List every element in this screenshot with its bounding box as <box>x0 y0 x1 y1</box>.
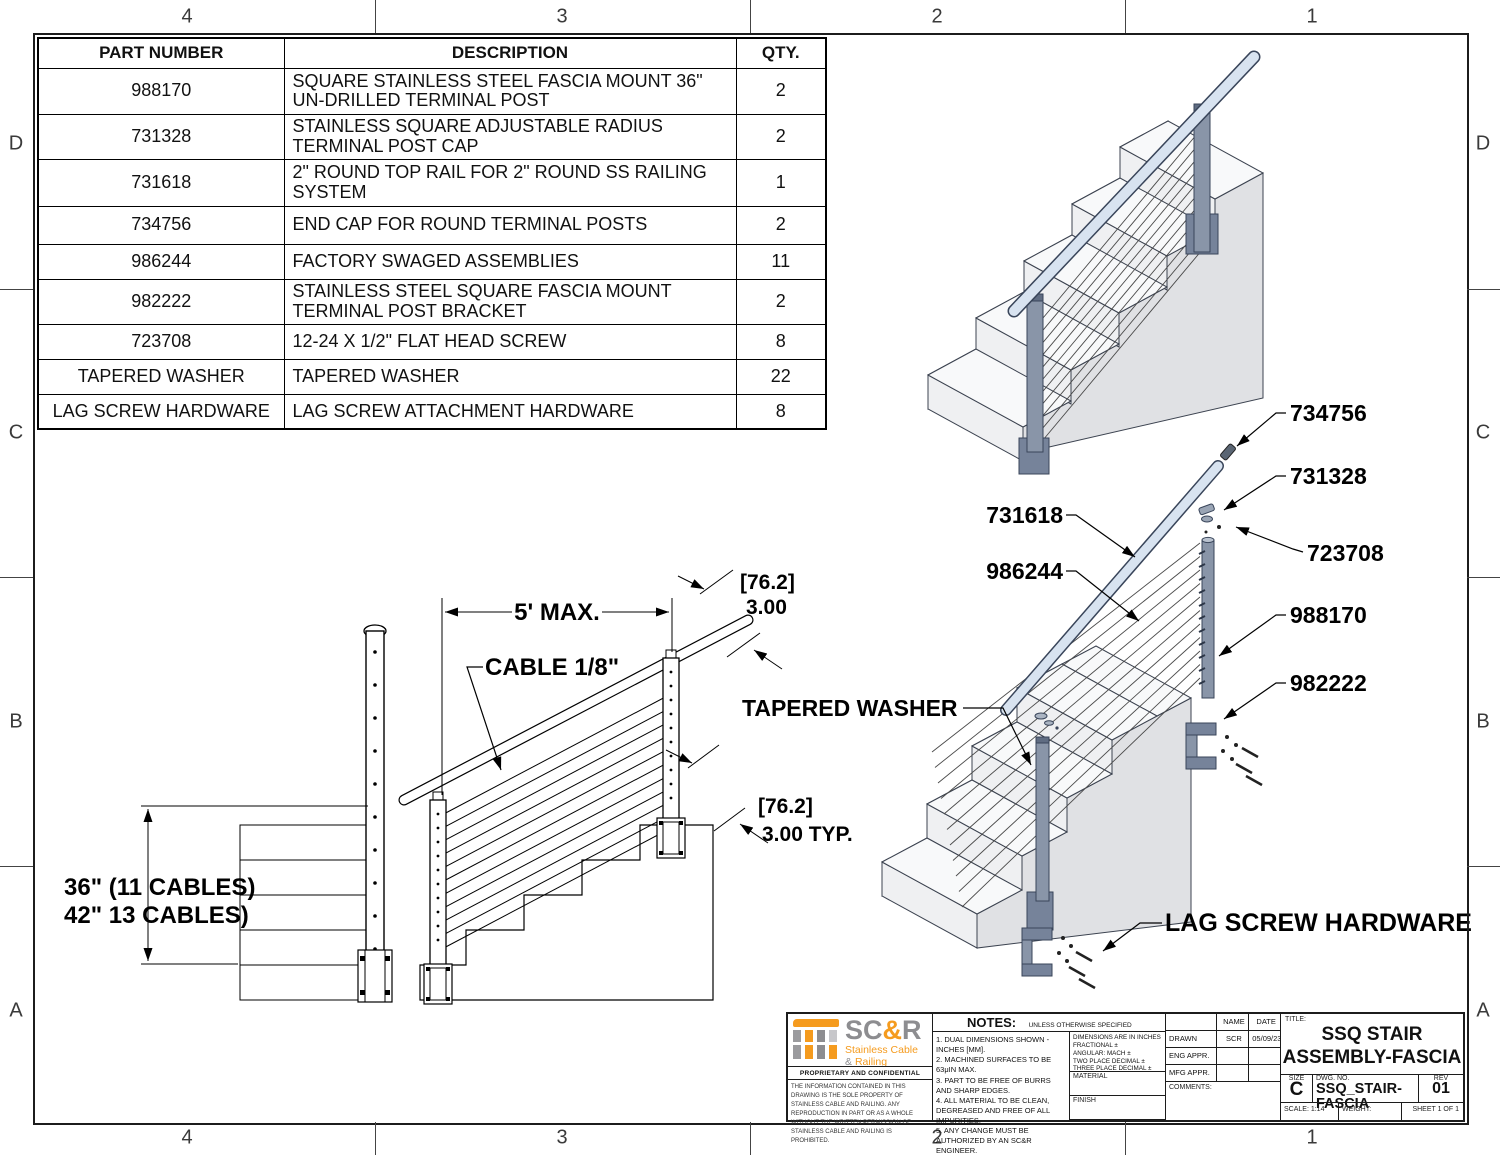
drawn-name: SCR <box>1216 1031 1249 1047</box>
notes-list: 1. DUAL DIMENSIONS SHOWN - INCHES [MM]. … <box>936 1035 1068 1155</box>
zone-label-top-4: 4 <box>181 6 192 29</box>
description-cell: FACTORY SWAGED ASSEMBLIES <box>284 244 736 279</box>
part-number-cell: 734756 <box>38 206 284 244</box>
table-row: 734756 END CAP FOR ROUND TERMINAL POSTS … <box>38 206 826 244</box>
zone-label-top-1: 1 <box>1306 6 1317 29</box>
zone-label-top-2: 2 <box>931 6 942 29</box>
title-cell: TITLE: SSQ STAIR ASSEMBLY-FASCIA SIZE C … <box>1280 1014 1463 1120</box>
scale-row: SCALE: 1:14 WEIGHT: SHEET 1 OF 1 <box>1281 1102 1463 1120</box>
qty-cell: 22 <box>736 359 826 394</box>
date-col-header: DATE <box>1248 1014 1280 1030</box>
name-col-header: NAME <box>1216 1014 1249 1030</box>
scr-logo-icon <box>793 1019 841 1061</box>
table-row: 723708 12-24 X 1/2" FLAT HEAD SCREW 8 <box>38 324 826 359</box>
zone-label-bottom-1: 1 <box>1306 1127 1317 1150</box>
size-value: C <box>1281 1082 1312 1097</box>
qty-cell: 1 <box>736 159 826 206</box>
zone-tick <box>375 1122 376 1155</box>
drawing-title: SSQ STAIR ASSEMBLY-FASCIA <box>1281 1024 1463 1070</box>
description-cell: STAINLESS STEEL SQUARE FASCIA MOUNT TERM… <box>284 279 736 324</box>
zone-label-right-A: A <box>1476 1000 1489 1023</box>
table-row: 988170 SQUARE STAINLESS STEEL FASCIA MOU… <box>38 68 826 114</box>
drawn-label: DRAWN <box>1166 1031 1216 1047</box>
qty-cell: 2 <box>736 114 826 159</box>
title-block: SC&R Stainless Cable & Railing PROPRIETA… <box>786 1012 1465 1122</box>
note-line: 1. DUAL DIMENSIONS SHOWN - INCHES [MM]. <box>936 1035 1068 1055</box>
logo-wordmark: SC&R <box>845 1017 922 1044</box>
col-header-qty: QTY. <box>736 38 826 68</box>
description-cell: SQUARE STAINLESS STEEL FASCIA MOUNT 36" … <box>284 68 736 114</box>
eng-appr-label: ENG APPR. <box>1166 1048 1216 1064</box>
drawn-date: 05/09/23 <box>1248 1031 1280 1047</box>
table-row: 731618 2" ROUND TOP RAIL FOR 2" ROUND SS… <box>38 159 826 206</box>
tolerance-line: ANGULAR: MACH ± <box>1073 1050 1166 1058</box>
zone-label-bottom-4: 4 <box>181 1127 192 1150</box>
part-number-cell: 988170 <box>38 68 284 114</box>
tolerance-line: TWO PLACE DECIMAL ± <box>1073 1058 1166 1066</box>
part-number-cell: 731618 <box>38 159 284 206</box>
drawing-sheet: 734756 731328 723708 988170 982222 73161… <box>0 0 1500 1155</box>
approvals-header-row: NAME DATE <box>1166 1014 1280 1031</box>
table-row: TAPERED WASHER TAPERED WASHER 22 <box>38 359 826 394</box>
part-number-cell: TAPERED WASHER <box>38 359 284 394</box>
zone-label-top-3: 3 <box>556 6 567 29</box>
note-line: 5. ANY CHANGE MUST BE AUTHORIZED BY AN S… <box>936 1126 1068 1155</box>
size-dwg-rev-row: SIZE C DWG. NO. SSQ_STAIR-FASCIA REV 01 <box>1281 1074 1463 1102</box>
qty-cell: 2 <box>736 206 826 244</box>
approvals-cell: NAME DATE DRAWN SCR 05/09/23 ENG APPR. M… <box>1165 1014 1280 1120</box>
zone-label-left-B: B <box>9 711 22 734</box>
zone-label-right-C: C <box>1476 422 1490 445</box>
tolerance-line: FRACTIONAL ± <box>1073 1042 1166 1050</box>
notes-cell: NOTES: UNLESS OTHERWISE SPECIFIED 1. DUA… <box>932 1014 1165 1120</box>
zone-label-left-A: A <box>9 1000 22 1023</box>
zone-label-left-D: D <box>9 133 23 156</box>
sheet-value: SHEET 1 OF 1 <box>1401 1103 1463 1120</box>
description-cell: TAPERED WASHER <box>284 359 736 394</box>
part-number-cell: 986244 <box>38 244 284 279</box>
tolerance-block: DIMENSIONS ARE IN INCHES FRACTIONAL ± AN… <box>1069 1032 1166 1072</box>
description-cell: STAINLESS SQUARE ADJUSTABLE RADIUS TERMI… <box>284 114 736 159</box>
proprietary-title: PROPRIETARY AND CONFIDENTIAL <box>788 1066 932 1080</box>
note-line: 4. ALL MATERIAL TO BE CLEAN, DEGREASED A… <box>936 1096 1068 1126</box>
zone-tick <box>1125 0 1126 33</box>
note-line: 2. MACHINED SURFACES TO BE 63μIN MAX. <box>936 1055 1068 1075</box>
eng-appr-row: ENG APPR. <box>1166 1048 1280 1065</box>
proprietary-text: THE INFORMATION CONTAINED IN THIS DRAWIN… <box>791 1083 923 1146</box>
zone-tick <box>750 0 751 33</box>
zone-tick <box>1467 866 1500 867</box>
zone-tick <box>1467 577 1500 578</box>
zone-tick <box>1467 289 1500 290</box>
table-row: 982222 STAINLESS STEEL SQUARE FASCIA MOU… <box>38 279 826 324</box>
material-cell: MATERIAL <box>1069 1072 1166 1096</box>
drawn-row: DRAWN SCR 05/09/23 <box>1166 1031 1280 1048</box>
zone-label-bottom-3: 3 <box>556 1127 567 1150</box>
zone-tick <box>750 1122 751 1155</box>
zone-tick <box>375 0 376 33</box>
finish-cell: FINISH <box>1069 1096 1166 1120</box>
qty-cell: 11 <box>736 244 826 279</box>
part-number-cell: 982222 <box>38 279 284 324</box>
table-row: 731328 STAINLESS SQUARE ADJUSTABLE RADIU… <box>38 114 826 159</box>
rev-value: 01 <box>1419 1082 1463 1096</box>
title-line-1: SSQ STAIR <box>1281 1024 1463 1047</box>
mfg-appr-label: MFG APPR. <box>1166 1065 1216 1081</box>
scale-value: SCALE: 1:14 <box>1281 1103 1338 1120</box>
qty-cell: 8 <box>736 394 826 429</box>
title-label: TITLE: <box>1285 1016 1306 1023</box>
description-cell: LAG SCREW ATTACHMENT HARDWARE <box>284 394 736 429</box>
notes-condition: UNLESS OTHERWISE SPECIFIED <box>1029 1022 1132 1029</box>
note-line: 3. PART TO BE FREE OF BURRS AND SHARP ED… <box>936 1076 1068 1096</box>
tolerance-line: DIMENSIONS ARE IN INCHES <box>1073 1034 1166 1042</box>
parts-table-header-row: PART NUMBER DESCRIPTION QTY. <box>38 38 826 68</box>
table-row: LAG SCREW HARDWARE LAG SCREW ATTACHMENT … <box>38 394 826 429</box>
part-number-cell: LAG SCREW HARDWARE <box>38 394 284 429</box>
title-line-2: ASSEMBLY-FASCIA <box>1281 1047 1463 1070</box>
zone-label-right-B: B <box>1476 711 1489 734</box>
description-cell: END CAP FOR ROUND TERMINAL POSTS <box>284 206 736 244</box>
notes-title: NOTES: <box>967 1015 1016 1030</box>
description-cell: 12-24 X 1/2" FLAT HEAD SCREW <box>284 324 736 359</box>
qty-cell: 8 <box>736 324 826 359</box>
part-number-cell: 723708 <box>38 324 284 359</box>
col-header-description: DESCRIPTION <box>284 38 736 68</box>
mfg-appr-row: MFG APPR. <box>1166 1065 1280 1082</box>
qty-cell: 2 <box>736 68 826 114</box>
zone-tick <box>0 866 33 867</box>
logo-tagline-1: Stainless Cable <box>845 1045 922 1056</box>
zone-label-right-D: D <box>1476 133 1490 156</box>
qty-cell: 2 <box>736 279 826 324</box>
zone-tick <box>1125 1122 1126 1155</box>
comments-label: COMMENTS: <box>1166 1082 1280 1091</box>
part-number-cell: 731328 <box>38 114 284 159</box>
parts-table: PART NUMBER DESCRIPTION QTY. 988170 SQUA… <box>37 37 827 430</box>
col-header-part-number: PART NUMBER <box>38 38 284 68</box>
zone-tick <box>0 289 33 290</box>
table-row: 986244 FACTORY SWAGED ASSEMBLIES 11 <box>38 244 826 279</box>
description-cell: 2" ROUND TOP RAIL FOR 2" ROUND SS RAILIN… <box>284 159 736 206</box>
zone-label-left-C: C <box>9 422 23 445</box>
zone-tick <box>0 577 33 578</box>
logo-cell: SC&R Stainless Cable & Railing PROPRIETA… <box>788 1014 932 1120</box>
weight-label: WEIGHT: <box>1338 1103 1401 1120</box>
